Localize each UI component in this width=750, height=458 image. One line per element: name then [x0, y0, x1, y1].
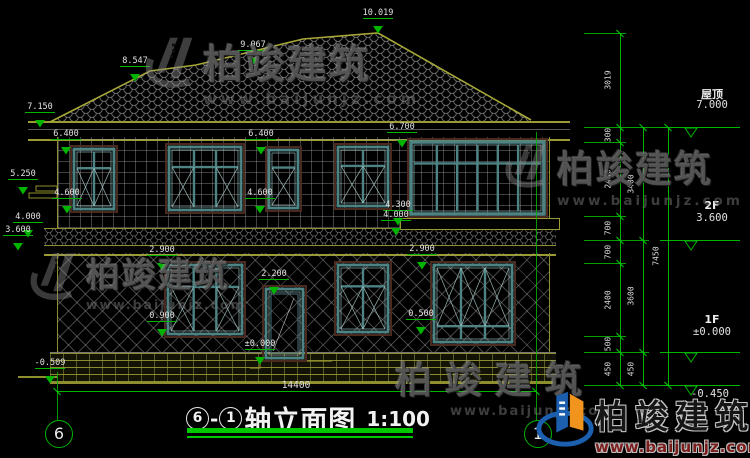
level-value: 3.600	[682, 212, 742, 224]
elevation-value: 2.200	[251, 269, 297, 279]
elevation-marker: 6.400	[43, 129, 89, 159]
elevation-value: 6.400	[43, 129, 89, 139]
axis-bubble: 6	[45, 420, 73, 448]
elevation-value: 3.600	[0, 225, 41, 235]
elevation-value: 8.547	[112, 56, 158, 66]
elevation-marker: 10.019	[355, 8, 401, 38]
elevation-value: 4.600	[44, 188, 90, 198]
window-2f-mid-left	[165, 143, 245, 214]
level-line	[660, 240, 740, 241]
dim-chain-line	[643, 127, 644, 385]
elevation-marker: -0.509	[27, 358, 73, 388]
witness-line	[584, 240, 649, 241]
witness-line	[584, 385, 674, 386]
axis-line	[536, 132, 537, 420]
dim-chain-label: 700	[604, 244, 613, 258]
elevation-marker: 4.000	[373, 210, 419, 240]
title-axis-end-bubble: 1	[219, 407, 242, 430]
elevation-marker: 6.700	[379, 122, 425, 152]
dim-chain-label: 500	[604, 337, 613, 351]
dim-chain-label: 3600	[627, 286, 636, 305]
title-axis-start-bubble: 6	[186, 407, 209, 430]
elevation-marker: 0.500	[398, 309, 444, 339]
elevation-marker: 3.600	[0, 225, 41, 255]
elevation-value: 4.000	[5, 212, 51, 222]
dim-chain-label: 450	[627, 361, 636, 375]
elevation-value: ±0.000	[237, 339, 283, 349]
elevation-value: 9.067	[230, 40, 276, 50]
elevation-marker: 2.200	[251, 269, 297, 299]
title-underline-thick	[187, 428, 413, 433]
elevation-value: 10.019	[355, 8, 401, 18]
elevation-marker: 6.400	[238, 129, 284, 159]
level-line	[660, 352, 740, 353]
dim-chain-label: 2400	[604, 169, 613, 188]
dim-chain-line	[668, 127, 669, 385]
elevation-marker: 9.067	[230, 40, 276, 70]
elevation-value: 2.900	[399, 244, 445, 254]
level-value: ±0.000	[682, 326, 742, 338]
dim-chain-label: 700	[604, 221, 613, 235]
elevation-value: 7.150	[17, 102, 63, 112]
dim-chain-label: 450	[604, 361, 613, 375]
window-1f-mid	[334, 261, 392, 336]
elevation-marker: 5.250	[0, 169, 46, 199]
elevation-marker: 0.900	[139, 311, 185, 341]
elevation-value: 2.900	[139, 245, 185, 255]
elevation-value: -0.509	[27, 358, 73, 368]
elevation-value: 6.400	[238, 129, 284, 139]
width-dim-label: 14400	[266, 380, 326, 391]
elevation-marker: 2.900	[139, 245, 185, 275]
elevation-value: 4.000	[373, 210, 419, 220]
title-scale: 1:100	[366, 407, 430, 431]
elevation-value: 4.600	[237, 188, 283, 198]
level-value: 7.000	[682, 99, 742, 111]
elevation-marker: 4.600	[237, 188, 283, 218]
elevation-marker: 8.547	[112, 56, 158, 86]
elevation-value: 0.900	[139, 311, 185, 321]
level-triangle-icon	[684, 128, 698, 139]
bay-window-2f	[407, 138, 548, 218]
elevation-marker: 7.150	[17, 102, 63, 132]
elevation-value: 0.500	[398, 309, 444, 319]
dim-chain-line	[620, 33, 621, 385]
witness-line	[584, 127, 674, 128]
elevation-value: 6.700	[379, 122, 425, 132]
dim-chain-label: 7450	[652, 246, 661, 265]
elevation-value: 5.250	[0, 169, 46, 179]
elevation-value: 4.300	[375, 200, 421, 210]
level-name: 2F	[684, 199, 740, 212]
width-dim-line	[57, 391, 536, 392]
title-dash: -	[210, 407, 218, 431]
elevation-marker: 2.900	[399, 244, 445, 274]
dim-chain-label: 3400	[627, 174, 636, 193]
elevation-drawing-canvas: 10.0199.0678.5477.1506.4006.4006.7005.25…	[0, 0, 750, 458]
witness-line	[584, 352, 649, 353]
elevation-marker: ±0.000	[237, 339, 283, 369]
axis-bubble: 1	[524, 420, 552, 448]
level-triangle-icon	[684, 241, 698, 252]
title-underline-thin	[187, 436, 413, 438]
dim-chain-label: 3019	[604, 70, 613, 89]
dim-chain-label: 2400	[604, 290, 613, 309]
level-triangle-icon	[684, 353, 698, 364]
level-name: 1F	[684, 313, 740, 326]
dim-chain-label: 300	[604, 127, 613, 141]
level-value: -0.450	[680, 388, 740, 400]
